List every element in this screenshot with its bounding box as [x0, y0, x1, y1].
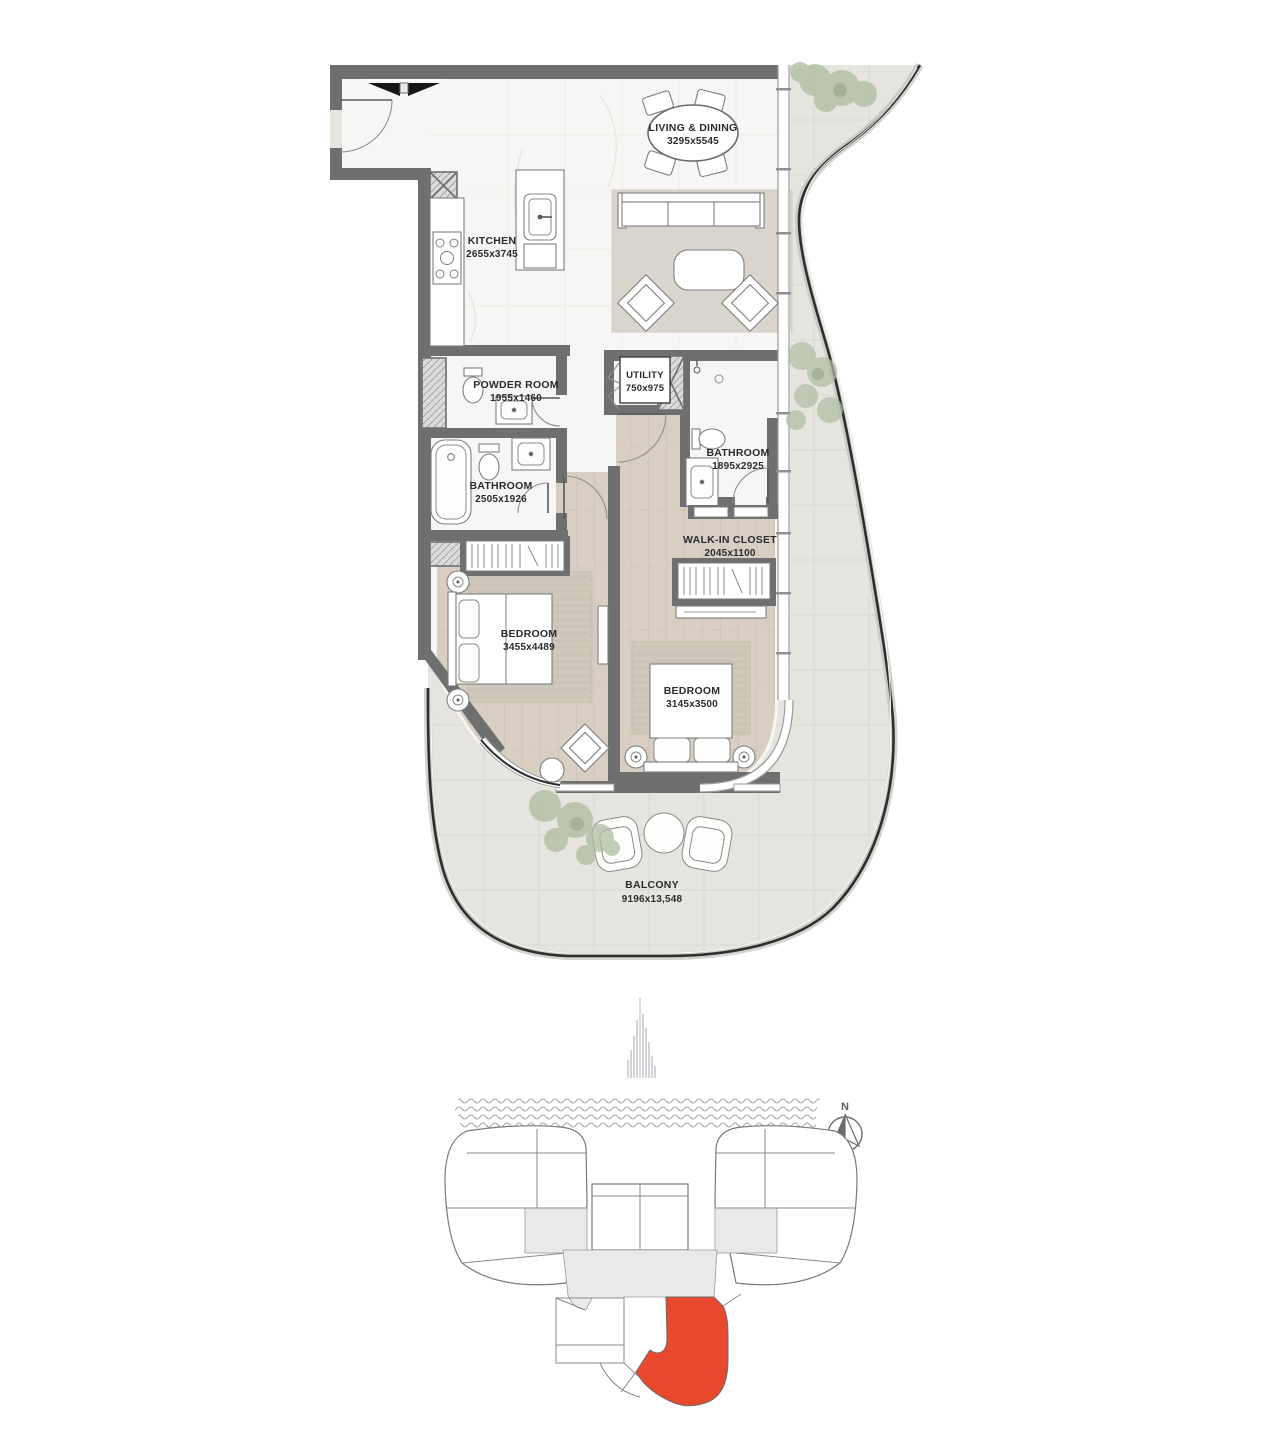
bed-headboard: [644, 762, 738, 772]
pillow: [654, 738, 690, 762]
coffee-table: [674, 250, 744, 290]
shaft-box: [430, 542, 464, 566]
north-label: N: [841, 1101, 849, 1113]
room-dims-walk-in-closet: 2045x1100: [704, 548, 756, 559]
sink-tap: [538, 215, 543, 220]
bathtub: [431, 440, 471, 524]
key-plan: N: [445, 998, 862, 1406]
pillow: [694, 738, 730, 762]
floor-plan: LIVING & DINING 3295x5545 KITCHEN 2655x3…: [330, 60, 920, 960]
room-label-powder-room: POWDER ROOM: [473, 379, 559, 391]
room-dims-bathroom-main: 2505x1926: [475, 494, 527, 505]
room-label-bedroom-second: BEDROOM: [664, 685, 721, 697]
building-outline: [445, 1126, 857, 1406]
nightstand-speaker: [447, 689, 469, 711]
nightstand-speaker: [447, 571, 469, 593]
window-band-bottom-left: [556, 784, 614, 791]
toilet: [692, 429, 725, 449]
room-label-kitchen: KITCHEN: [468, 235, 516, 247]
side-table: [540, 758, 564, 782]
room-label-walk-in-closet: WALK-IN CLOSET: [683, 534, 777, 546]
room-dims-utility: 750x975: [626, 383, 665, 394]
room-label-utility: UTILITY: [626, 370, 664, 381]
bed-headboard: [448, 592, 456, 686]
floor-plan-page: LIVING & DINING 3295x5545 KITCHEN 2655x3…: [0, 0, 1280, 1445]
water-waves-icon: [455, 1096, 820, 1128]
wall-console: [598, 606, 608, 664]
sink-vanity: [512, 438, 550, 470]
room-dims-bathroom-second: 1895x2925: [712, 461, 764, 472]
room-dims-powder-room: 1955x1460: [490, 393, 542, 404]
burj-khalifa-icon: [628, 998, 655, 1078]
room-dims-balcony: 9196x13,548: [622, 894, 683, 905]
pillow: [459, 600, 479, 638]
sofa: [618, 193, 764, 228]
toilet: [479, 444, 499, 480]
room-label-bathroom-second: BATHROOM: [706, 447, 769, 459]
room-label-balcony: BALCONY: [625, 879, 679, 891]
unit-highlight: [636, 1297, 728, 1406]
room-label-bathroom-main: BATHROOM: [469, 480, 532, 492]
room-label-living-dining: LIVING & DINING: [649, 122, 738, 134]
window-band-bottom-right: [734, 784, 780, 791]
room-dims-bedroom-primary: 3455x4489: [503, 642, 555, 653]
room-dims-living-dining: 3295x5545: [667, 136, 719, 147]
room-dims-bedroom-second: 3145x3500: [666, 699, 718, 710]
balcony-armchair: [680, 814, 734, 873]
bedroom1-closet: [460, 536, 570, 576]
pillow: [459, 644, 479, 682]
balcony-table: [644, 813, 684, 853]
room-dims-kitchen: 2655x3745: [466, 249, 518, 260]
shaft-box: [422, 358, 446, 428]
room-label-bedroom-primary: BEDROOM: [501, 628, 558, 640]
